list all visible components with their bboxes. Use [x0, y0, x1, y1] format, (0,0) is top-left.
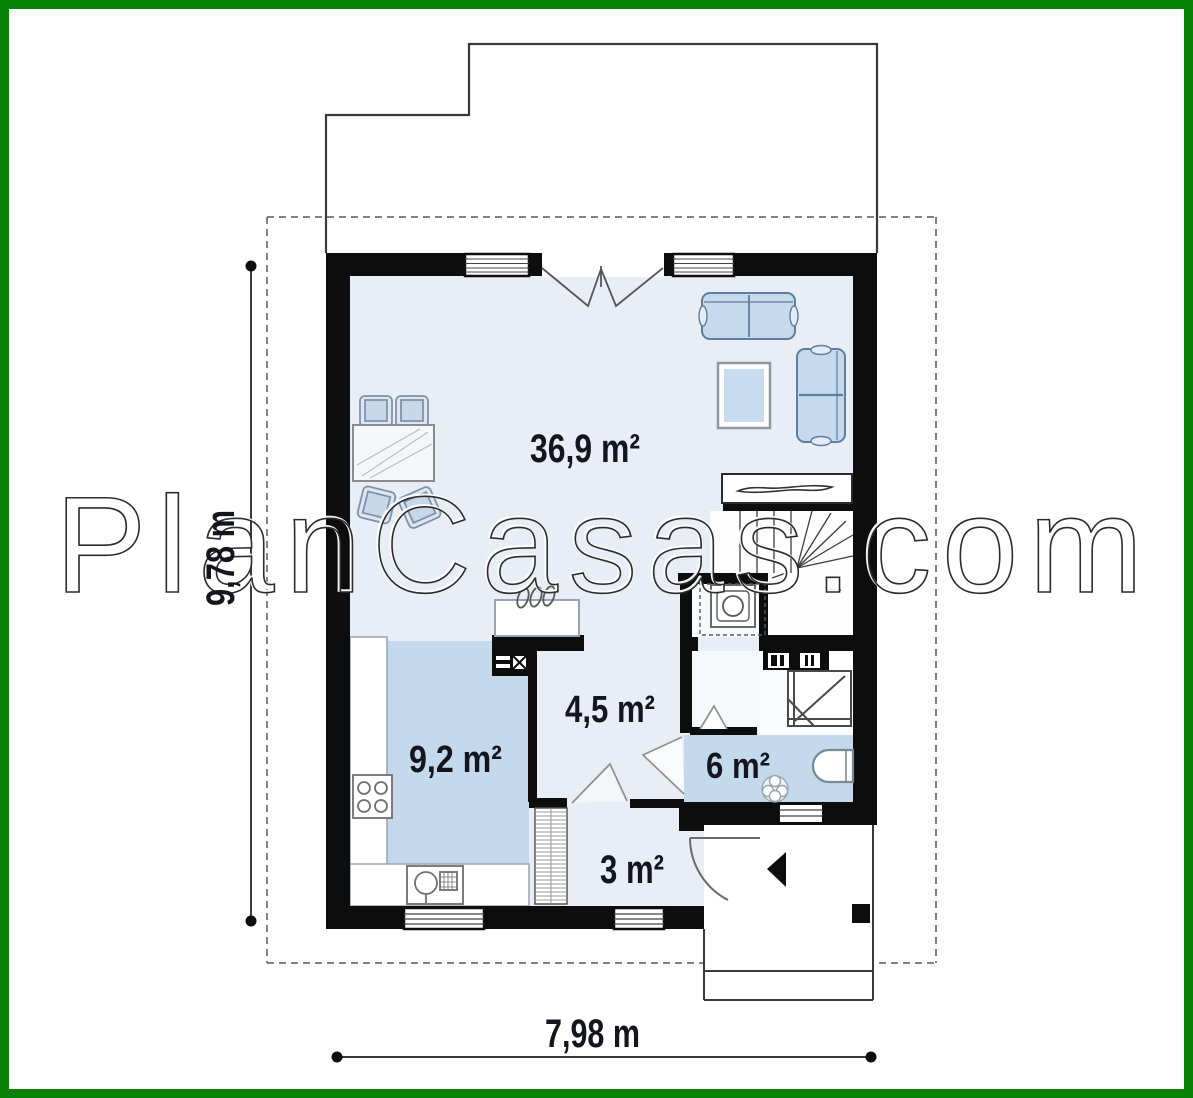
svg-text:9,78 m: 9,78 m: [199, 510, 243, 606]
svg-text:9,2 m²: 9,2 m²: [409, 739, 502, 781]
svg-text:4,5 m²: 4,5 m²: [565, 689, 655, 731]
svg-text:3 m²: 3 m²: [600, 848, 664, 892]
svg-text:7,98 m: 7,98 m: [545, 1012, 640, 1056]
svg-text:6 m²: 6 m²: [706, 745, 770, 786]
svg-text:36,9 m²: 36,9 m²: [530, 427, 640, 471]
